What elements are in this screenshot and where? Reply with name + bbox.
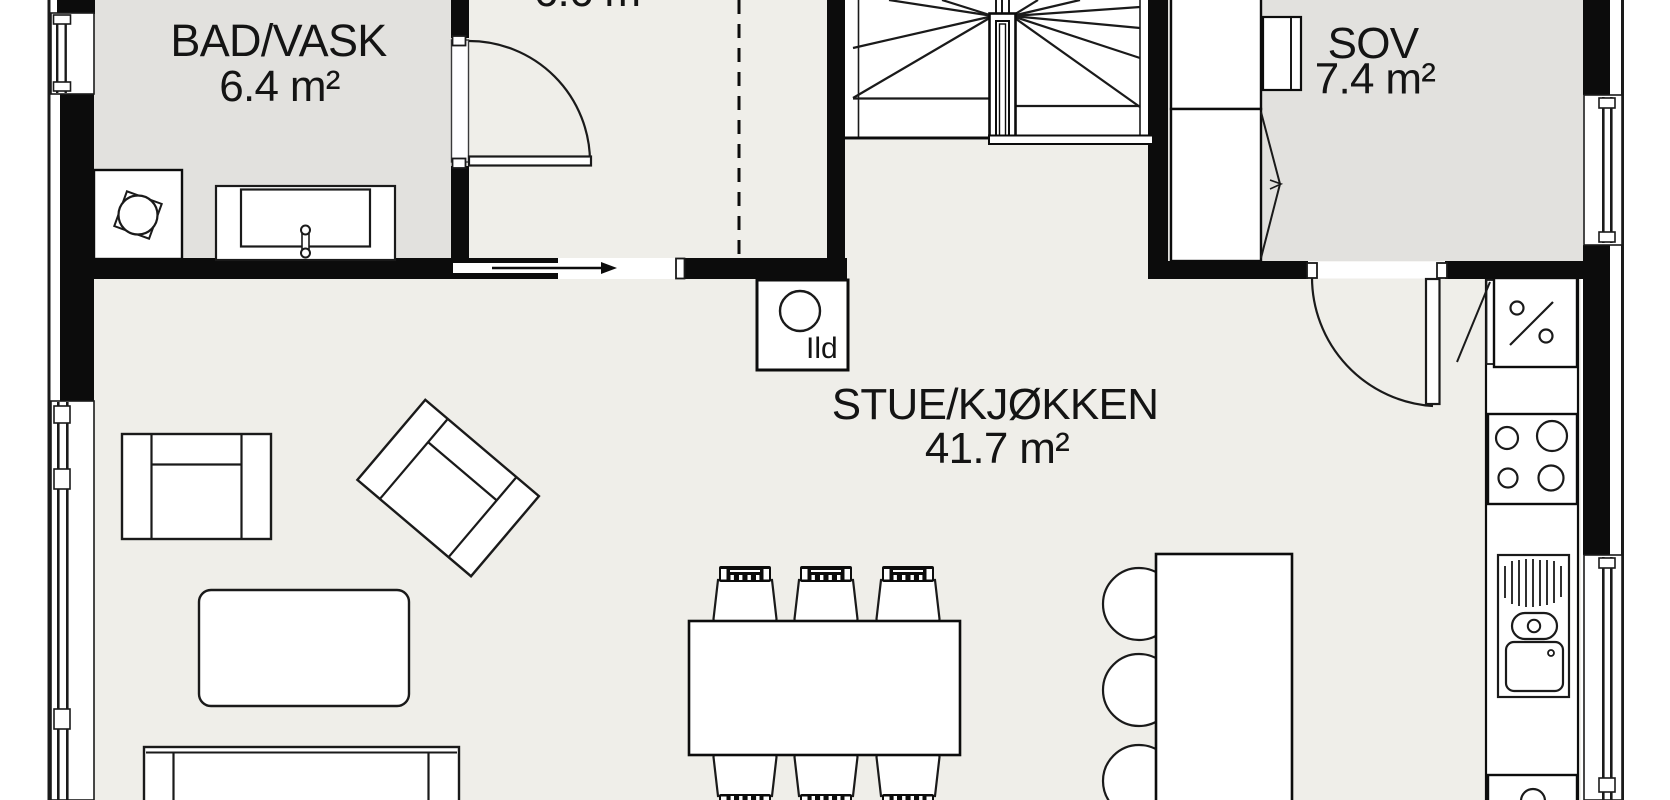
svg-text:41.7 m²: 41.7 m² — [925, 424, 1069, 473]
svg-text:STUE/KJØKKEN: STUE/KJØKKEN — [832, 380, 1159, 429]
svg-text:6.4 m²: 6.4 m² — [219, 62, 340, 111]
svg-text:Ild: Ild — [806, 332, 838, 365]
svg-text:BAD/VASK: BAD/VASK — [170, 15, 387, 66]
svg-text:7.4 m²: 7.4 m² — [1315, 55, 1436, 104]
svg-text:6.6 m²: 6.6 m² — [534, 0, 655, 16]
